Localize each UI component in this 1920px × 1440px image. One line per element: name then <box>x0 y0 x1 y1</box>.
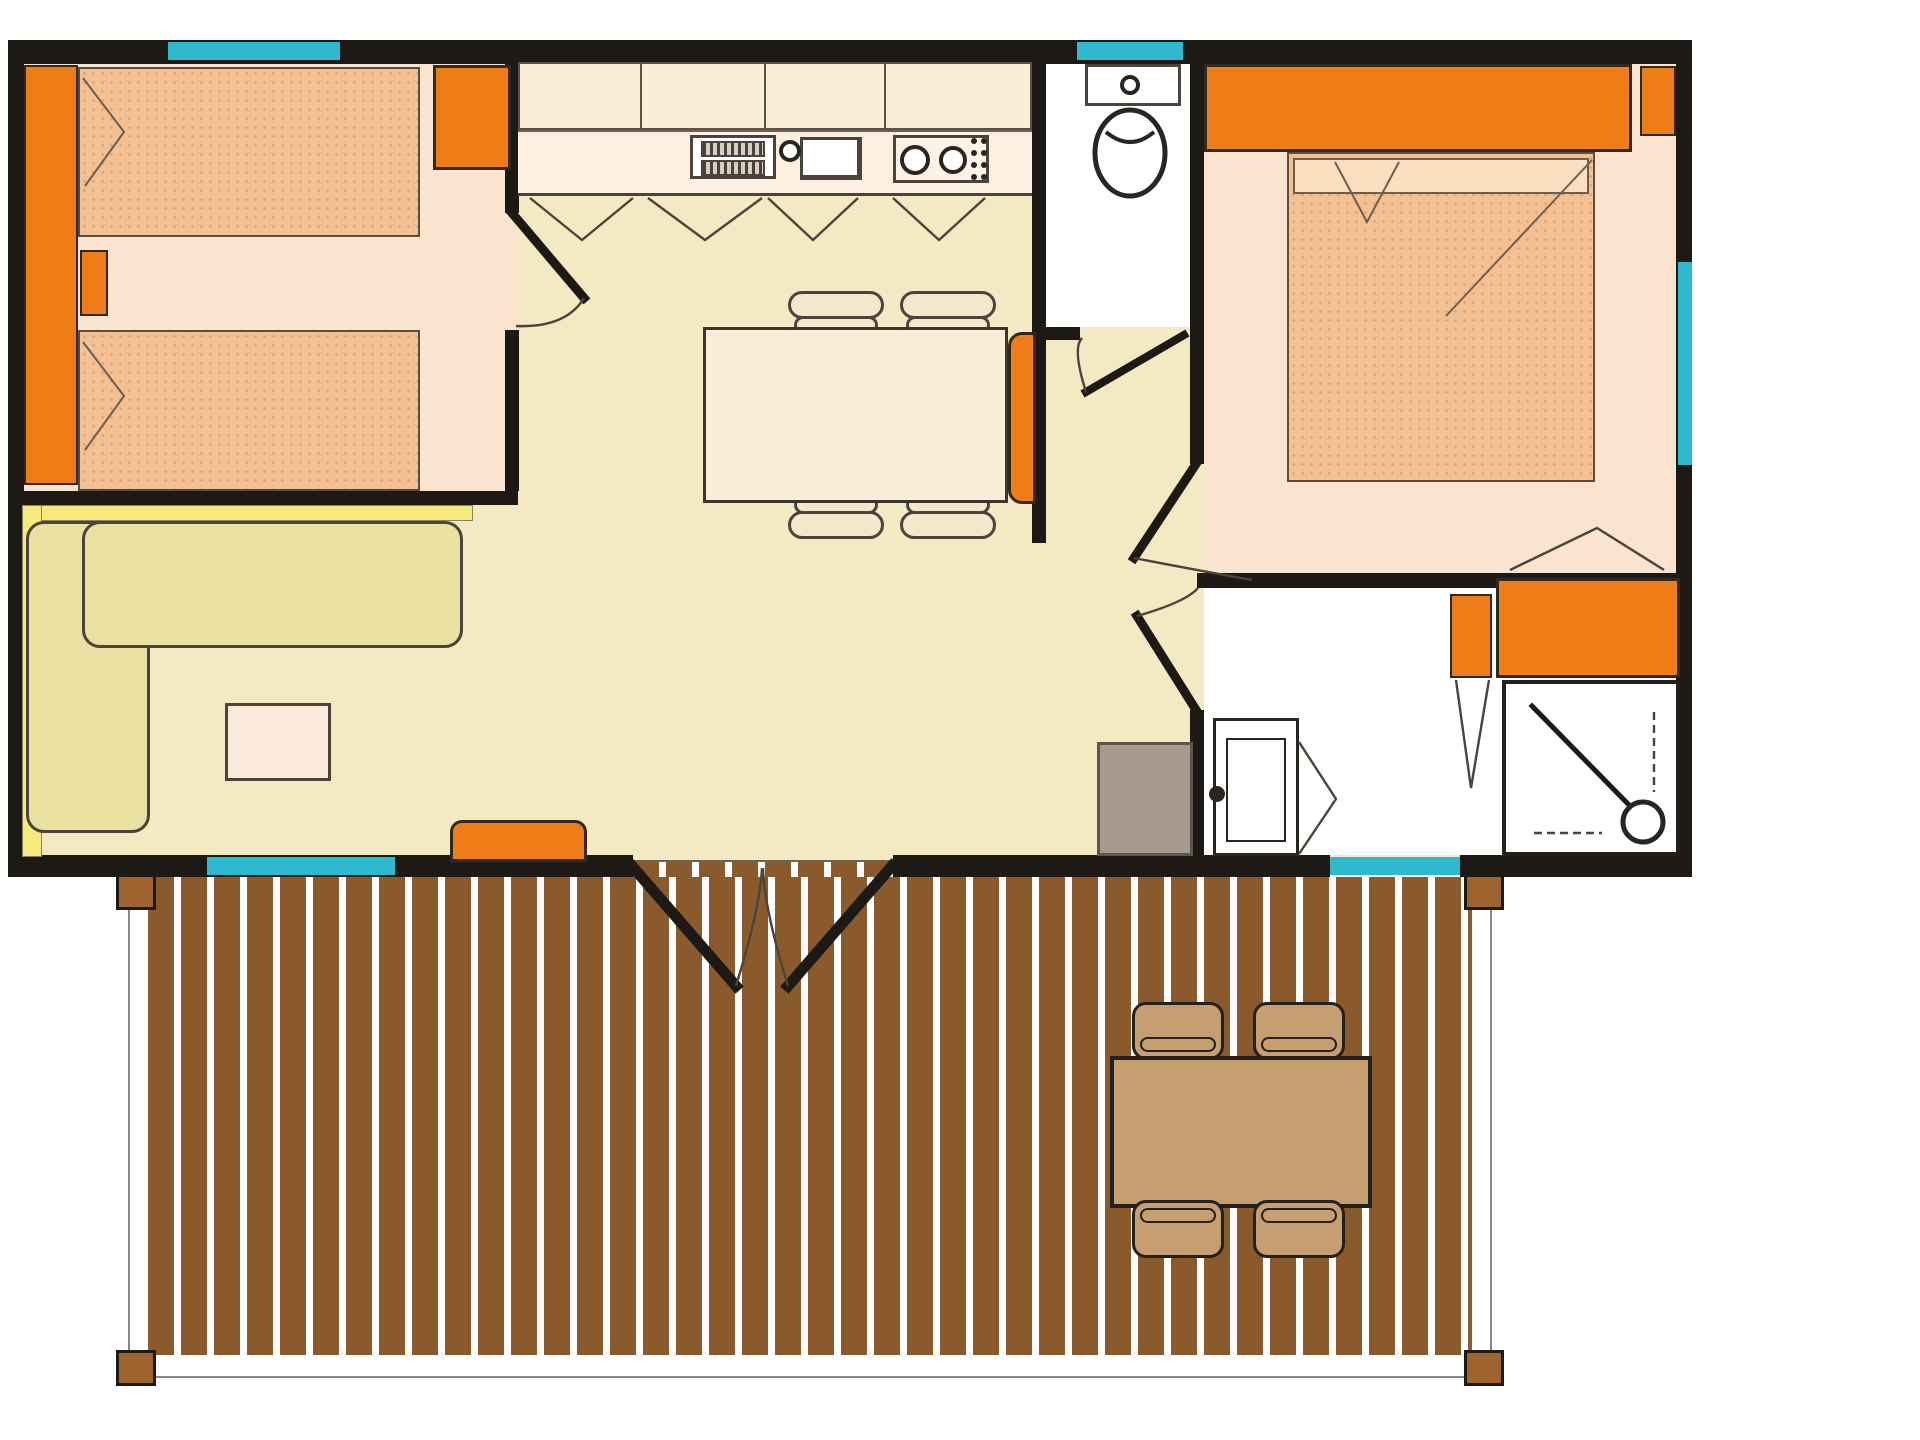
dining-chair <box>788 291 884 319</box>
water-heater <box>1097 742 1193 856</box>
deck-post-top-left <box>116 874 156 910</box>
wardrobe <box>433 65 511 170</box>
dining-chair <box>900 291 996 319</box>
outdoor-table <box>1110 1056 1372 1208</box>
master-headboard <box>1204 64 1632 152</box>
cabinet-seam <box>764 64 766 128</box>
deck-post-top-right <box>1464 874 1504 910</box>
dining-chair <box>788 511 884 539</box>
wall-bottom-right <box>1460 855 1692 877</box>
nightstand <box>80 250 108 316</box>
cabinet-seam <box>640 64 642 128</box>
sink-basin <box>701 160 765 176</box>
floor-plan <box>0 0 1920 1440</box>
wall-master-bedroom-left <box>1190 62 1204 464</box>
coffee-table <box>225 703 331 781</box>
double-bed-pillows <box>1293 158 1589 194</box>
master-nightstand <box>1640 66 1676 136</box>
bathroom-cabinet-large <box>1496 578 1680 678</box>
wall-twin-bedroom-partition-lower <box>505 330 519 491</box>
twin-bed-2 <box>78 330 420 491</box>
draining-board <box>800 137 862 180</box>
dining-table <box>703 327 1008 503</box>
sink-basin <box>701 141 765 157</box>
dining-bench <box>1008 332 1036 504</box>
living-wall-shelf <box>22 505 473 521</box>
deck-post-bottom-right <box>1464 1350 1504 1386</box>
wc-washbasin <box>1085 64 1181 106</box>
outdoor-chair <box>1132 1200 1224 1258</box>
wall-bottom-middle <box>893 855 1330 877</box>
wall-wc-bottom-stub <box>1046 327 1080 340</box>
window-shower-room <box>1330 857 1460 875</box>
window-twin-bedroom <box>168 42 340 60</box>
outdoor-chair-seat <box>1261 1208 1337 1223</box>
shower <box>1502 680 1680 856</box>
window-master-bedroom <box>1678 262 1692 465</box>
outdoor-chair-seat <box>1140 1208 1216 1223</box>
twin-bed-1 <box>78 67 420 237</box>
outdoor-chair-seat <box>1261 1037 1337 1052</box>
deck-post-bottom-left <box>116 1350 156 1386</box>
stove <box>893 135 989 183</box>
window-living <box>207 857 395 875</box>
window-wc <box>1077 42 1183 60</box>
double-bed <box>1287 152 1595 482</box>
bathroom-cabinet-small <box>1450 594 1492 678</box>
dining-chair <box>900 511 996 539</box>
twin-bedroom-headboard <box>24 65 78 485</box>
kitchen-sink <box>690 135 776 179</box>
washbasin-inner <box>1226 738 1286 842</box>
outdoor-chair <box>1132 1002 1224 1060</box>
outdoor-chair <box>1253 1002 1345 1060</box>
corner-sofa-top <box>82 521 463 648</box>
wall-twin-bedroom-living <box>8 491 518 505</box>
deck-entry-planks <box>633 860 893 877</box>
tv-unit <box>450 820 587 862</box>
cabinet-seam <box>884 64 886 128</box>
outdoor-chair-seat <box>1140 1037 1216 1052</box>
outdoor-chair <box>1253 1200 1345 1258</box>
kitchen-upper-cabinets <box>518 62 1032 130</box>
